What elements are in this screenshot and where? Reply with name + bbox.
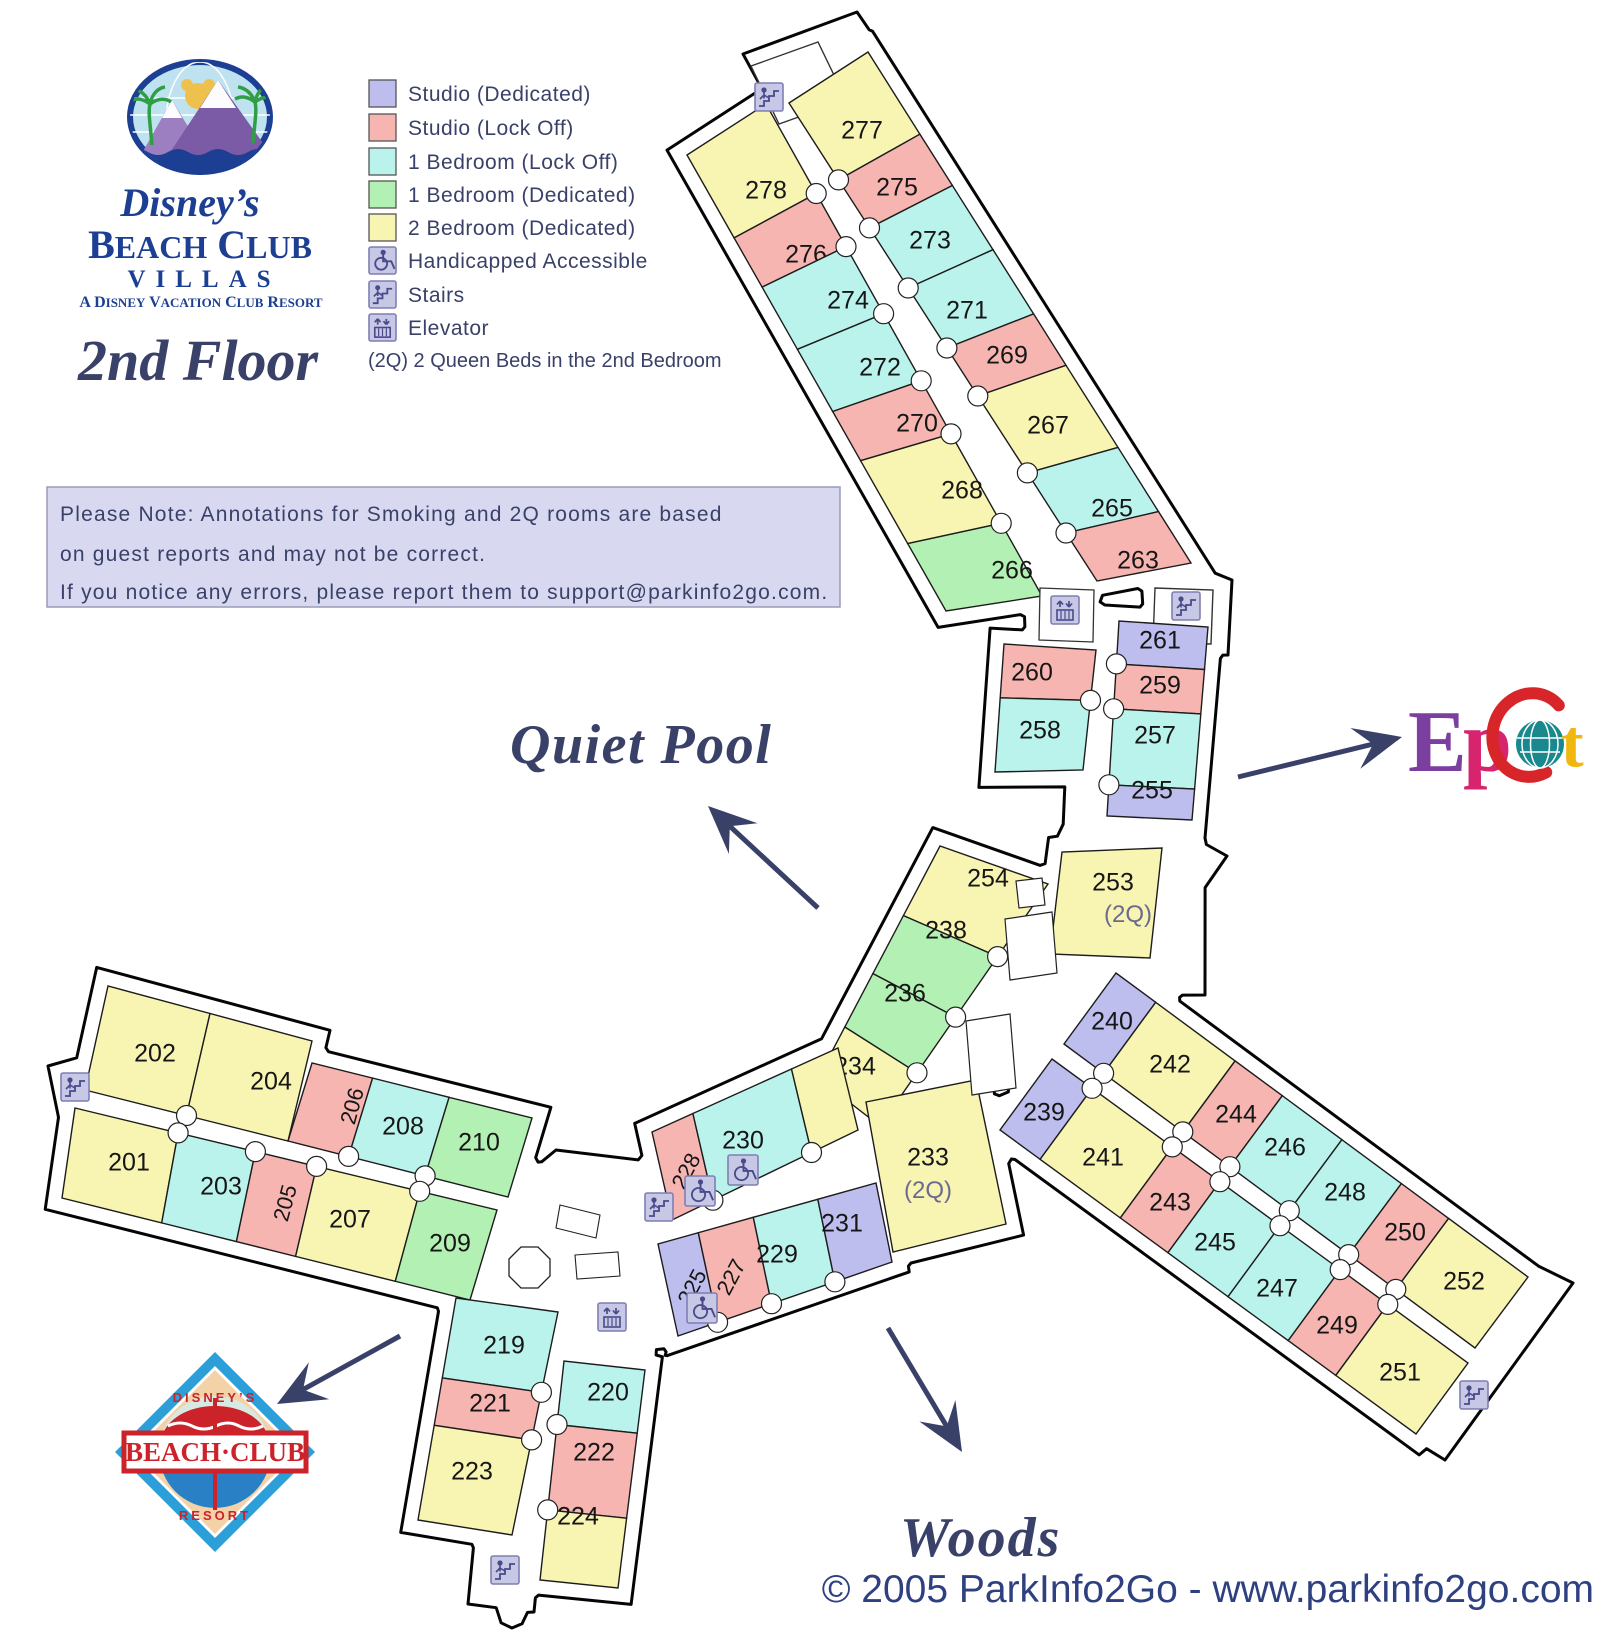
svg-text:270: 270 (896, 410, 938, 438)
svg-text:251: 251 (1379, 1359, 1421, 1387)
svg-text:209: 209 (429, 1230, 471, 1258)
svg-text:238: 238 (925, 917, 967, 945)
svg-text:261: 261 (1139, 627, 1181, 655)
svg-text:271: 271 (946, 297, 988, 325)
svg-text:249: 249 (1316, 1312, 1358, 1340)
svg-text:273: 273 (909, 227, 951, 255)
svg-text:231: 231 (821, 1210, 863, 1238)
svg-text:277: 277 (841, 117, 883, 145)
svg-text:272: 272 (859, 354, 901, 382)
svg-text:260: 260 (1011, 659, 1053, 687)
svg-text:201: 201 (108, 1149, 150, 1177)
svg-text:259: 259 (1139, 672, 1181, 700)
svg-text:© 2005 ParkInfo2Go - www.parki: © 2005 ParkInfo2Go - www.parkinfo2go.com (822, 1568, 1594, 1611)
svg-text:258: 258 (1019, 717, 1061, 745)
svg-text:222: 222 (573, 1439, 615, 1467)
svg-text:255: 255 (1131, 777, 1173, 805)
svg-text:Studio (Lock Off): Studio (Lock Off) (408, 117, 574, 140)
svg-text:278: 278 (745, 177, 787, 205)
svg-text:275: 275 (876, 174, 918, 202)
svg-text:268: 268 (941, 477, 983, 505)
svg-text:Quiet Pool: Quiet Pool (510, 714, 772, 776)
svg-text:252: 252 (1443, 1268, 1485, 1296)
svg-text:223: 223 (451, 1458, 493, 1486)
svg-text:240: 240 (1091, 1008, 1133, 1036)
svg-text:2 Bedroom (Dedicated): 2 Bedroom (Dedicated) (408, 217, 636, 240)
svg-text:246: 246 (1264, 1134, 1306, 1162)
svg-text:DISNEY’S: DISNEY’S (173, 1390, 258, 1405)
svg-text:210: 210 (458, 1129, 500, 1157)
svg-text:247: 247 (1256, 1275, 1298, 1303)
svg-text:221: 221 (469, 1390, 511, 1418)
svg-text:E: E (1408, 694, 1467, 791)
svg-text:229: 229 (756, 1241, 798, 1269)
svg-text:t: t (1561, 705, 1584, 781)
svg-text:Handicapped Accessible: Handicapped Accessible (408, 250, 648, 273)
svg-text:267: 267 (1027, 412, 1069, 440)
svg-text:2nd Floor: 2nd Floor (77, 328, 319, 393)
svg-text:263: 263 (1117, 547, 1159, 575)
svg-text:(2Q): (2Q) (1104, 901, 1152, 928)
svg-text:243: 243 (1149, 1189, 1191, 1217)
svg-text:1 Bedroom (Dedicated): 1 Bedroom (Dedicated) (408, 184, 636, 207)
svg-text:245: 245 (1194, 1229, 1236, 1257)
svg-text:233: 233 (907, 1144, 949, 1172)
svg-text:236: 236 (884, 980, 926, 1008)
svg-text:253: 253 (1092, 869, 1134, 897)
svg-text:If you notice any errors, plea: If you notice any errors, please report … (60, 581, 828, 604)
svg-text:266: 266 (991, 557, 1033, 585)
svg-text:A DISNEY VACATION CLUB RESORT: A DISNEY VACATION CLUB RESORT (79, 294, 322, 311)
svg-text:207: 207 (329, 1206, 371, 1234)
svg-text:254: 254 (967, 865, 1009, 893)
svg-text:208: 208 (382, 1113, 424, 1141)
svg-text:BEACH·CLUB: BEACH·CLUB (125, 1437, 305, 1467)
svg-text:274: 274 (827, 287, 869, 315)
svg-text:Disney’s: Disney’s (119, 180, 259, 225)
svg-text:(2Q) 2 Queen Beds in the 2nd B: (2Q) 2 Queen Beds in the 2nd Bedroom (368, 350, 722, 372)
svg-text:242: 242 (1149, 1051, 1191, 1079)
svg-text:239: 239 (1023, 1099, 1065, 1127)
svg-text:204: 204 (250, 1068, 292, 1096)
svg-text:(2Q): (2Q) (904, 1177, 952, 1204)
svg-text:244: 244 (1215, 1101, 1257, 1129)
svg-text:203: 203 (200, 1173, 242, 1201)
svg-text:241: 241 (1082, 1144, 1124, 1172)
svg-text:248: 248 (1324, 1179, 1366, 1207)
svg-text:1 Bedroom (Lock Off): 1 Bedroom (Lock Off) (408, 151, 618, 174)
svg-text:202: 202 (134, 1040, 176, 1068)
svg-text:VILLAS: VILLAS (127, 266, 280, 293)
svg-text:RESORT: RESORT (179, 1508, 251, 1523)
svg-text:on guest reports and may not b: on guest reports and may not be correct. (60, 543, 486, 566)
svg-text:230: 230 (722, 1127, 764, 1155)
svg-text:BEACH CLUB: BEACH CLUB (88, 222, 312, 267)
svg-text:Studio (Dedicated): Studio (Dedicated) (408, 83, 591, 106)
svg-text:257: 257 (1134, 722, 1176, 750)
svg-text:219: 219 (483, 1332, 525, 1360)
svg-text:Please Note: Annotations for: Please Note: Annotations for Smoking and… (60, 503, 723, 526)
svg-text:Elevator: Elevator (408, 317, 489, 340)
svg-text:250: 250 (1384, 1219, 1426, 1247)
svg-text:Stairs: Stairs (408, 284, 465, 307)
svg-text:224: 224 (557, 1503, 599, 1531)
svg-text:269: 269 (986, 342, 1028, 370)
svg-text:220: 220 (587, 1379, 629, 1407)
svg-text:Woods: Woods (900, 1507, 1061, 1569)
